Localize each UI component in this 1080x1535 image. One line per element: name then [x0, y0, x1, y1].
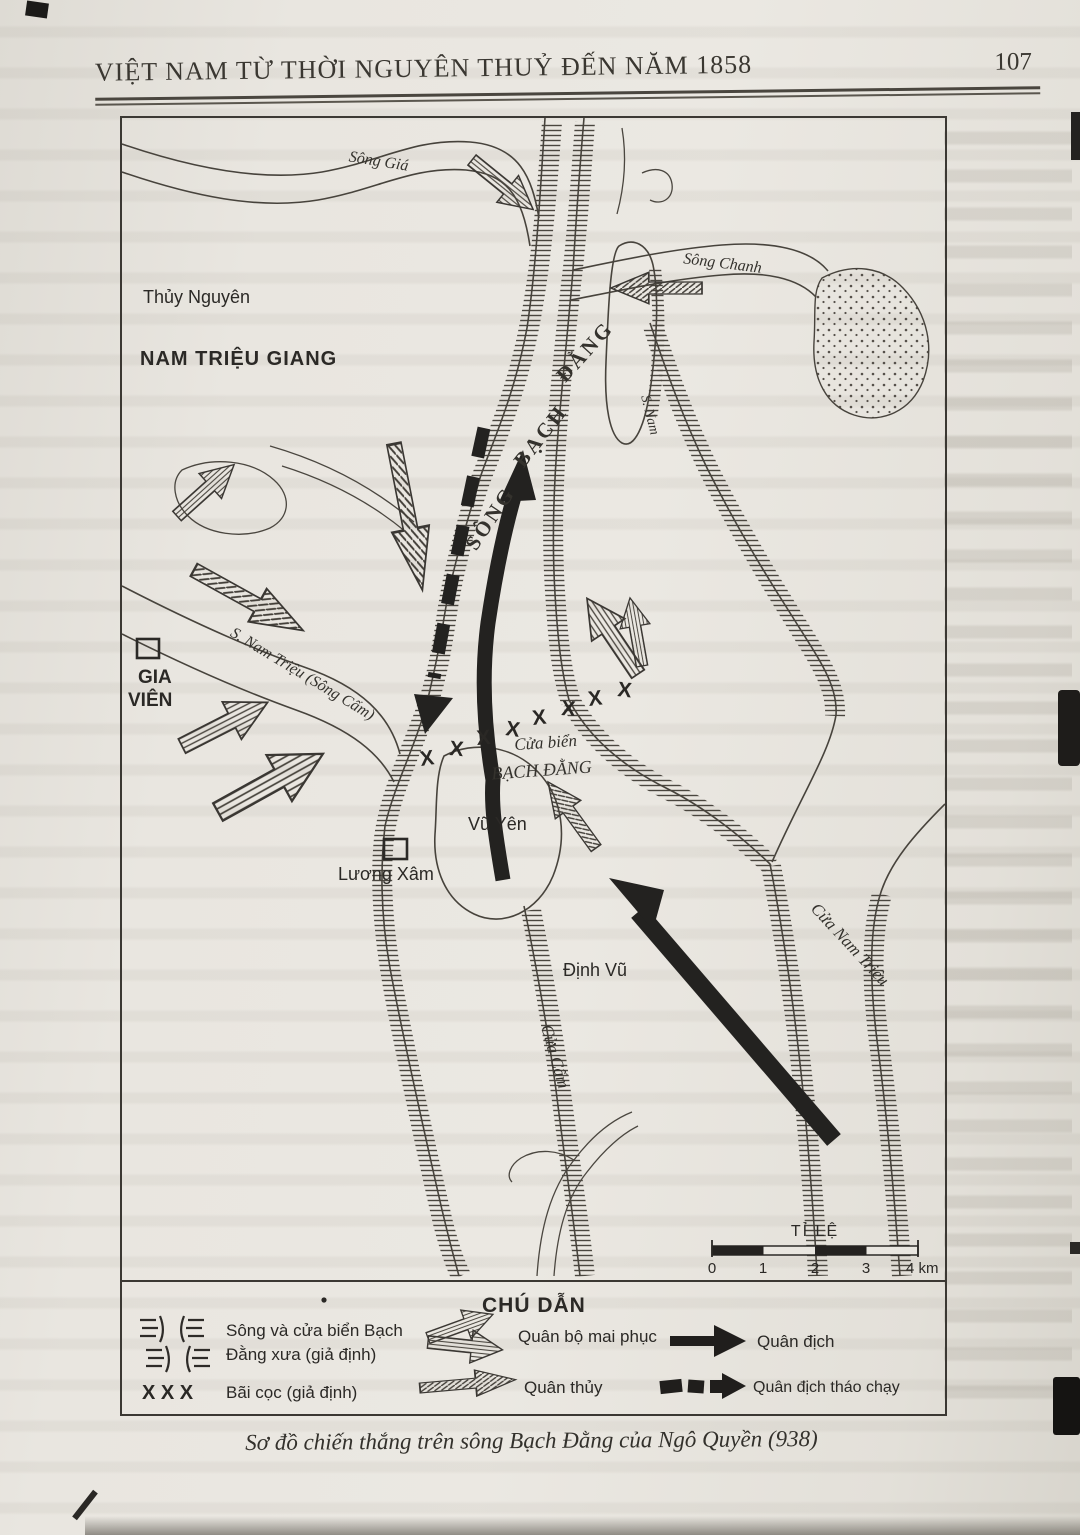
scan-artifact — [1058, 690, 1080, 766]
figure-caption: Sơ đồ chiến thắng trên sông Bạch Đằng củ… — [120, 1425, 943, 1457]
page-bottom-shadow — [85, 1516, 1080, 1535]
battle-map: X X X X X X X X Sông Giá Thủy Nguyên NAM… — [120, 116, 947, 1282]
citadel-square-gia-vien — [137, 639, 159, 658]
map-legend: CHÚ DẪN Sông và cửa biển Bạch Đằng xưa (… — [120, 1280, 947, 1416]
legend-stakes-symbol: X X X — [142, 1382, 194, 1404]
scale-tick-3: 3 — [862, 1260, 870, 1277]
stake-marker: X — [561, 697, 577, 721]
scale-tick-1: 1 — [759, 1260, 767, 1277]
navy-symbol — [419, 1367, 517, 1401]
legend-ambush-label: Quân bộ mai phục — [518, 1327, 657, 1346]
stray-dot — [321, 1297, 326, 1302]
stake-marker: X — [476, 726, 492, 750]
enemy-symbol — [670, 1325, 746, 1357]
ambush-arrow — [166, 452, 246, 528]
legend-stakes-label: Bãi cọc (giả định) — [226, 1383, 357, 1402]
stake-field: X X X X X X X X — [418, 678, 632, 771]
scale-tick-0: 0 — [708, 1260, 716, 1277]
navy-arrow — [535, 773, 608, 858]
scan-artifact — [1053, 1377, 1080, 1435]
legend-river-label-line1: Sông và cửa biển Bạch — [226, 1321, 403, 1340]
scale-tick-4: 4 km — [906, 1260, 939, 1277]
label-vu-yen: Vũ Yên — [468, 814, 527, 834]
ambush-arrow — [461, 147, 544, 223]
stake-marker: X — [587, 686, 604, 711]
ink-bleed-through-margin — [944, 110, 1072, 1410]
label-cua-bien-line2: BẠCH ĐẰNG — [491, 756, 593, 784]
label-gia-vien-line1: GIA — [138, 667, 172, 688]
label-thuy-nguyen: Thủy Nguyên — [143, 287, 250, 307]
enemy-flee-symbol — [659, 1373, 746, 1399]
scale-title: TỈ LỆ — [791, 1221, 839, 1240]
dotted-island — [814, 269, 929, 418]
running-title: VIỆT NAM TỪ THỜI NGUYÊN THUỶ ĐẾN NĂM 185… — [95, 50, 753, 87]
stake-marker: X — [531, 706, 547, 730]
scan-artifact — [1070, 1242, 1080, 1254]
label-dinh-vu: Định Vũ — [563, 960, 627, 980]
river-symbol — [140, 1316, 210, 1372]
label-song-gia: Sông Giá — [348, 148, 410, 174]
ambush-arrow — [172, 684, 277, 765]
legend-river-label-line2: Đằng xưa (giả định) — [226, 1345, 376, 1364]
scan-artifact — [25, 1, 49, 19]
scan-artifact — [1071, 112, 1080, 160]
legend-enemy-flee-label: Quân địch tháo chạy — [753, 1379, 900, 1396]
map-drawing: X X X X X X X X Sông Giá Thủy Nguyên NAM… — [122, 118, 945, 1278]
legend-title: CHÚ DẪN — [482, 1293, 586, 1317]
scale-tick-2: 2 — [811, 1260, 819, 1277]
scanned-book-page: VIỆT NAM TỪ THỜI NGUYÊN THUỶ ĐẾN NĂM 185… — [0, 0, 1080, 1535]
label-song-chanh: Sông Chanh — [682, 250, 762, 276]
legend-navy-label: Quân thủy — [524, 1378, 603, 1397]
page-header: VIỆT NAM TỪ THỜI NGUYÊN THUỶ ĐẾN NĂM 185… — [95, 46, 1041, 106]
legend-enemy-label: Quân địch — [757, 1332, 835, 1351]
label-cua-cam: Cửa Cấm — [537, 1022, 573, 1090]
label-nam-trieu-giang: NAM TRIỆU GIANG — [140, 346, 337, 370]
label-luong-xam: Lương Xâm — [338, 864, 434, 884]
label-cua-bien-line1: Cửa biển — [514, 731, 578, 754]
ambush-arrow — [205, 731, 335, 835]
label-gia-vien-line2: VIÊN — [128, 689, 172, 711]
stake-marker: X — [449, 737, 465, 761]
stake-marker: X — [616, 678, 632, 702]
stake-marker: X — [418, 746, 435, 771]
page-number: 107 — [994, 48, 1032, 76]
navy-arrow — [375, 440, 440, 593]
legend-drawing: CHÚ DẪN Sông và cửa biển Bạch Đằng xưa (… — [122, 1280, 945, 1414]
